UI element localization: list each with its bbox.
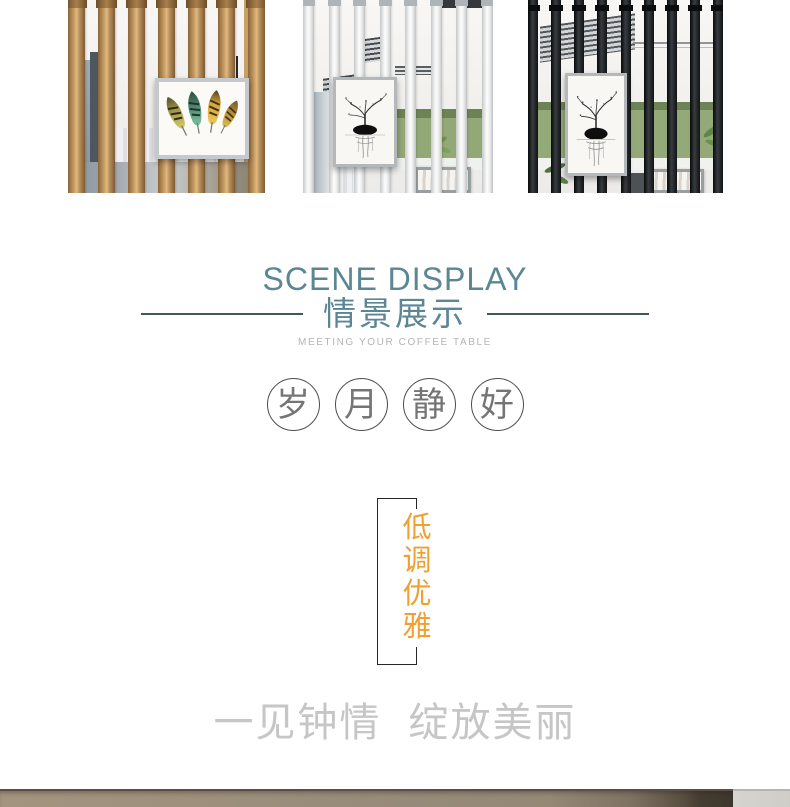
partition-pole xyxy=(431,0,442,193)
banner-char: 调 xyxy=(398,545,436,578)
divider-line-right xyxy=(487,313,649,315)
ink-tree-artwork-icon xyxy=(336,80,394,164)
partition-pole xyxy=(528,0,538,193)
section-subtitle: MEETING YOUR COFFEE TABLE xyxy=(0,337,790,348)
partition-pole xyxy=(713,0,723,193)
scene-photo-white-partition xyxy=(303,0,493,193)
partition-pole xyxy=(248,0,265,193)
partition-pole xyxy=(456,0,467,193)
banner-char: 优 xyxy=(398,578,436,611)
light-wall-section xyxy=(733,789,790,807)
banner-char: 低 xyxy=(398,512,436,545)
section-title-divider: 情景展示 xyxy=(0,296,790,332)
divider-line-left xyxy=(141,313,303,315)
partition-pole xyxy=(68,0,85,193)
ink-tree-art-frame xyxy=(565,73,627,176)
motto-circles: 岁 月 静 好 xyxy=(0,378,790,431)
feather-art-frame xyxy=(155,78,249,159)
section-title-chinese: 情景展示 xyxy=(323,296,467,332)
banner-char: 雅 xyxy=(398,611,436,644)
motto-circle-1: 岁 xyxy=(267,378,320,431)
tagline: 一见钟情 绽放美丽 xyxy=(0,690,790,748)
motto-circle-3: 静 xyxy=(403,378,456,431)
partition-pole xyxy=(482,0,493,193)
feather-artwork-icon xyxy=(159,82,245,155)
motto-char: 好 xyxy=(480,388,514,422)
partition-pole xyxy=(303,0,314,193)
section-title-english: SCENE DISPLAY xyxy=(0,261,790,298)
bottom-photo-strip xyxy=(0,789,790,807)
motto-char: 岁 xyxy=(276,388,310,422)
partition-pole xyxy=(644,0,654,193)
partition-pole xyxy=(128,0,145,193)
motto-char: 静 xyxy=(412,388,446,422)
vertical-banner-text: 低 调 优 雅 xyxy=(398,509,436,647)
motto-circle-4: 好 xyxy=(471,378,524,431)
ink-tree-artwork-icon xyxy=(568,76,624,173)
motto-char: 月 xyxy=(344,388,378,422)
motto-circle-2: 月 xyxy=(335,378,388,431)
ink-tree-art-frame xyxy=(333,77,397,167)
partition-pole xyxy=(667,0,677,193)
white-pole-screen xyxy=(303,0,493,193)
partition-pole xyxy=(551,0,561,193)
scene-photo-black-partition xyxy=(528,0,723,193)
partition-pole xyxy=(98,0,115,193)
product-scene-display-section: SCENE DISPLAY 情景展示 MEETING YOUR COFFEE T… xyxy=(0,0,790,807)
partition-pole xyxy=(690,0,700,193)
partition-pole xyxy=(405,0,416,193)
scene-photo-gold-partition xyxy=(68,0,265,193)
wood-table-edge xyxy=(0,789,733,807)
